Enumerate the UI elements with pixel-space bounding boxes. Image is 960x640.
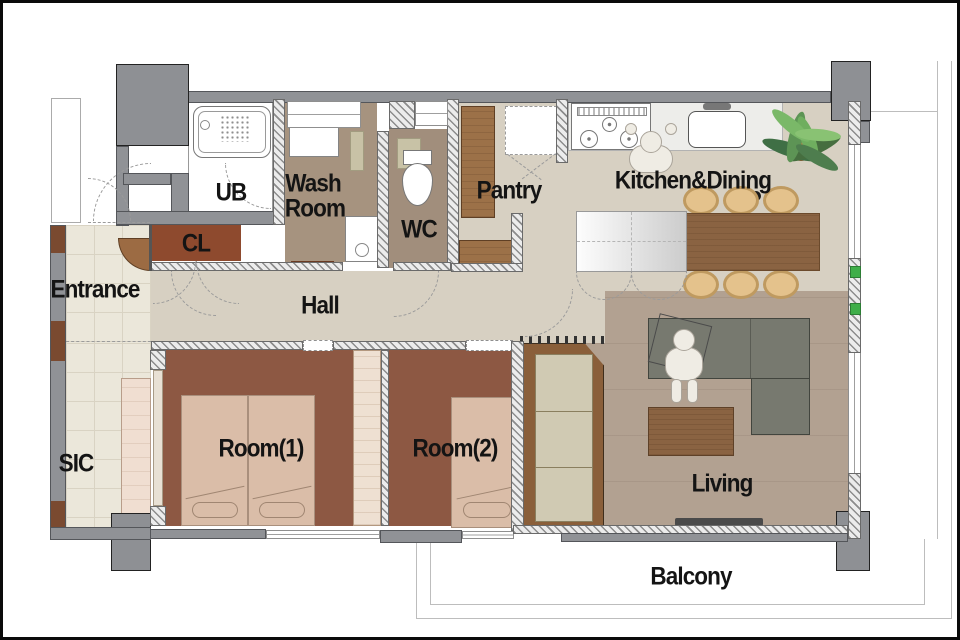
- pillar-bottom-left: [111, 513, 151, 571]
- cabinet-shelf: [535, 354, 593, 522]
- stove-grill-icon: [577, 107, 647, 116]
- dining-table: [686, 213, 820, 271]
- wall-room2-living: [511, 341, 524, 531]
- blanket-fold: [457, 486, 518, 500]
- wall-sic-room1-stub: [150, 506, 166, 526]
- person-hand: [665, 123, 677, 135]
- top-window-wc: [415, 101, 448, 126]
- washroom-shelf: [350, 131, 364, 171]
- label-ub: UB: [216, 179, 247, 208]
- label-wc: WC: [401, 216, 437, 245]
- person-leg: [687, 379, 698, 403]
- bottom-window-room1: [266, 530, 380, 539]
- bath-drain-icon: [200, 120, 210, 130]
- cabinet-vent-dots: [520, 336, 604, 344]
- exterior-line-right-2: [951, 61, 952, 539]
- label-kitchen-dining: Kitchen&Dining: [615, 167, 771, 196]
- wall-entrance-cl: [149, 225, 152, 271]
- bottom-window-room2: [462, 531, 514, 539]
- vanity-basin-icon: [355, 243, 369, 257]
- bottom-wall: [50, 527, 151, 540]
- cabinet-divider: [536, 467, 592, 468]
- coffee-table: [648, 407, 734, 456]
- label-room2: Room(2): [413, 435, 498, 464]
- floor-plan: Entrance SIC CL UB Wash Room WC Pantry H…: [0, 0, 960, 640]
- pillow: [463, 502, 511, 518]
- cabinet-divider: [536, 411, 592, 412]
- bathtub: [193, 106, 271, 158]
- stove-burner: [580, 130, 598, 148]
- wall-hall-bottom: [151, 341, 303, 350]
- room1-door: [303, 340, 333, 351]
- person-hand: [625, 123, 637, 135]
- person-figure-sofa: [659, 323, 711, 405]
- blanket-fold: [186, 486, 245, 499]
- sic-pocket-door: [153, 370, 163, 506]
- wall-sic-room1-stub: [150, 350, 166, 370]
- dining-chair: [763, 270, 799, 299]
- label-cl: CL: [182, 230, 210, 259]
- bottom-wall: [150, 529, 266, 539]
- label-washroom-line2: Room: [285, 195, 345, 224]
- left-wall-wood-accent: [51, 226, 65, 253]
- wall-room1-room2: [381, 350, 389, 526]
- right-wall-segment: [848, 473, 861, 539]
- wall-pantry-bottom: [451, 263, 523, 272]
- wall-ub-washroom: [273, 99, 285, 225]
- entrance-threshold: [88, 222, 150, 223]
- label-room1: Room(1): [219, 435, 304, 464]
- stove-burner: [602, 117, 617, 132]
- island-centerline: [631, 212, 632, 271]
- window-lock-green: [850, 266, 861, 278]
- exterior-line-right-1: [937, 61, 938, 539]
- wall-pantry-kitchen: [556, 99, 568, 163]
- room1-closet-strip: [353, 350, 381, 526]
- label-sic: SIC: [59, 450, 94, 479]
- storage-cabinet: [523, 343, 604, 531]
- exterior-wall-outline-top-left: [51, 98, 81, 223]
- label-pantry: Pantry: [477, 177, 542, 206]
- sofa-chaise: [751, 378, 810, 435]
- kitchen-island: [576, 211, 687, 272]
- person-leg: [671, 379, 682, 403]
- pillow: [192, 502, 238, 518]
- pillar-top-left: [116, 64, 189, 146]
- refrigerator: [505, 106, 557, 155]
- left-wall: [50, 225, 66, 540]
- blanket-fold: [253, 486, 312, 499]
- wall-hall-bottom: [333, 341, 466, 350]
- label-entrance: Entrance: [50, 276, 139, 305]
- wall-hall-top: [393, 262, 451, 271]
- left-wall-wood-accent: [51, 321, 65, 361]
- bath-mat: [220, 115, 250, 142]
- exterior-line-top-right: [870, 111, 937, 112]
- person-head: [673, 329, 695, 351]
- bottom-wall: [380, 530, 462, 543]
- wall-washroom-wc: [377, 131, 389, 268]
- wall-wc-top: [389, 101, 415, 129]
- right-wall-segment: [848, 101, 861, 145]
- label-hall: Hall: [301, 292, 339, 321]
- wall-wc-pantry: [447, 99, 459, 268]
- sofa-seam: [750, 319, 751, 378]
- label-living: Living: [692, 470, 753, 499]
- label-balcony: Balcony: [650, 563, 731, 592]
- sic-shoe-shelf: [121, 378, 151, 515]
- room2-door: [466, 340, 513, 351]
- kitchen-sink: [688, 111, 746, 148]
- person-body: [665, 347, 703, 381]
- pillow: [259, 502, 305, 518]
- dining-chair: [723, 270, 759, 299]
- window-lock-green: [850, 303, 861, 315]
- dining-chair: [683, 270, 719, 299]
- top-window-washroom: [287, 101, 361, 128]
- bottom-wall-living: [561, 533, 848, 542]
- vanity-sink: [345, 216, 378, 262]
- sic-threshold: [66, 341, 151, 342]
- faucet-icon: [703, 103, 731, 110]
- person-head: [640, 131, 662, 153]
